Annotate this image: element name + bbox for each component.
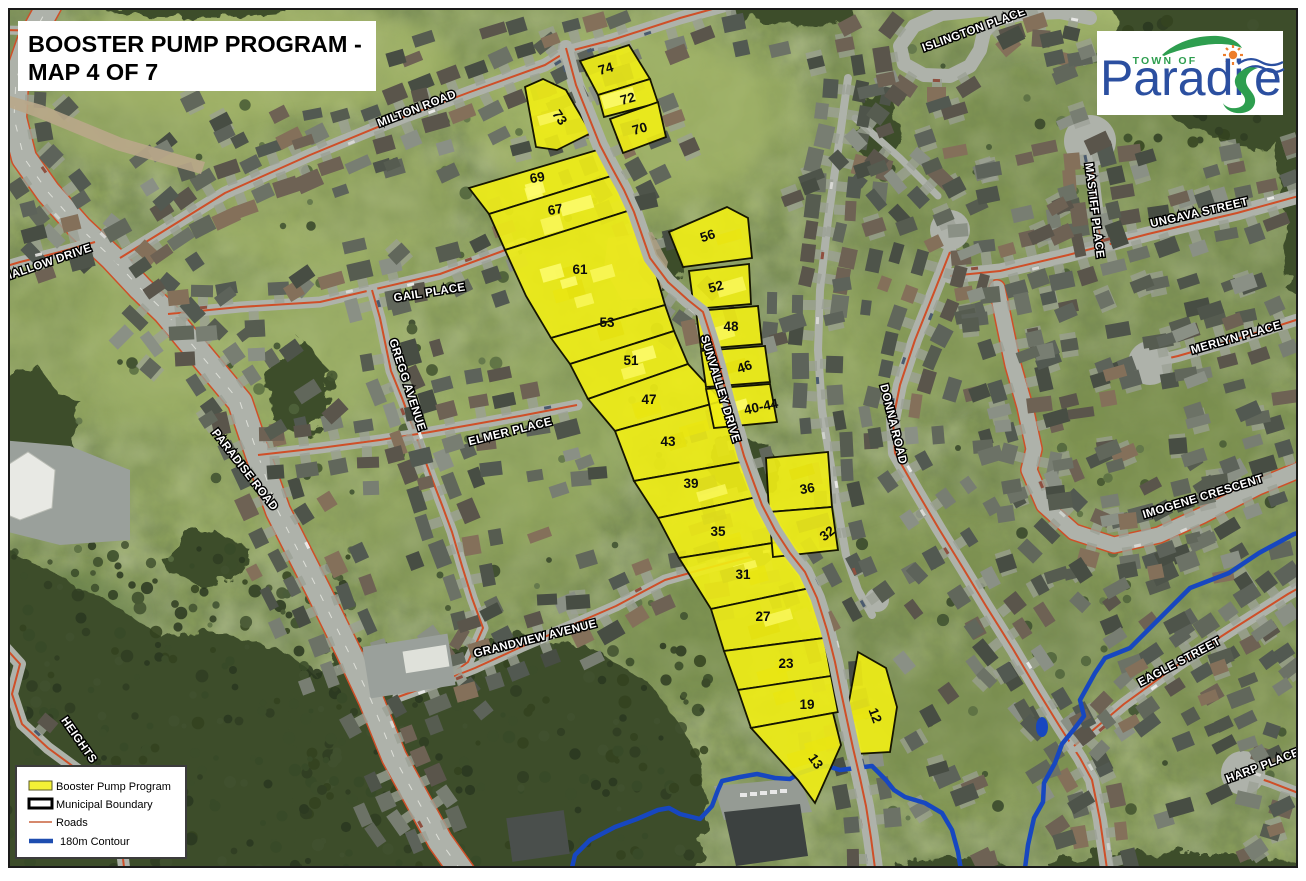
svg-text:51: 51 — [623, 353, 639, 368]
svg-text:48: 48 — [723, 319, 739, 334]
svg-text:36: 36 — [799, 480, 817, 497]
svg-text:69: 69 — [529, 169, 546, 186]
svg-text:31: 31 — [735, 567, 751, 582]
svg-text:180m Contour: 180m Contour — [60, 836, 130, 848]
svg-text:Paradi: Paradi — [1100, 50, 1245, 106]
svg-text:Booster Pump Program: Booster Pump Program — [56, 781, 171, 793]
svg-text:e: e — [1254, 50, 1282, 106]
svg-text:MAP 4 OF 7: MAP 4 OF 7 — [28, 59, 158, 85]
svg-text:27: 27 — [755, 609, 770, 624]
svg-text:35: 35 — [710, 524, 726, 539]
svg-text:39: 39 — [683, 476, 698, 491]
svg-text:61: 61 — [572, 262, 588, 277]
svg-text:BOOSTER PUMP PROGRAM -: BOOSTER PUMP PROGRAM - — [28, 31, 362, 57]
svg-text:23: 23 — [778, 656, 794, 671]
svg-text:53: 53 — [599, 315, 615, 330]
svg-text:67: 67 — [547, 201, 564, 218]
svg-text:Municipal Boundary: Municipal Boundary — [56, 799, 153, 811]
svg-text:19: 19 — [799, 697, 814, 712]
svg-text:Roads: Roads — [56, 817, 88, 829]
svg-text:47: 47 — [641, 392, 656, 407]
svg-text:43: 43 — [660, 434, 676, 449]
